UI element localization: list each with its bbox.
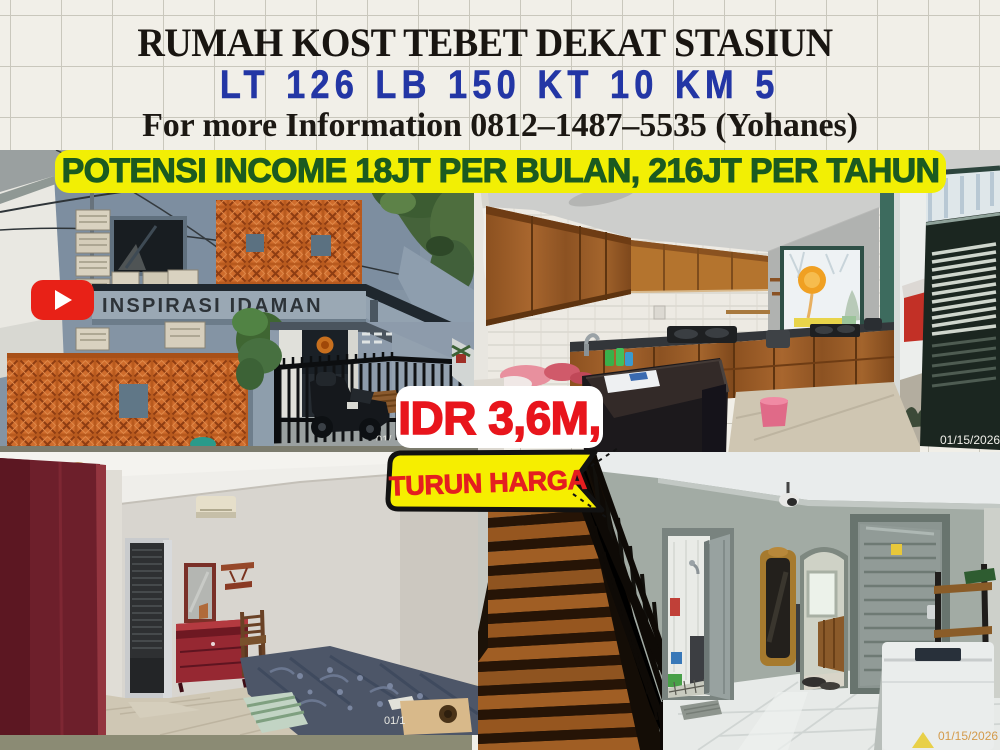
svg-text:01/1: 01/1 bbox=[384, 715, 405, 727]
svg-text:01/15/2026: 01/15/2026 bbox=[940, 433, 1000, 447]
svg-text:INSPIRASI IDAMAN: INSPIRASI IDAMAN bbox=[102, 295, 323, 317]
svg-text:01/15/2026: 01/15/2026 bbox=[938, 729, 998, 743]
